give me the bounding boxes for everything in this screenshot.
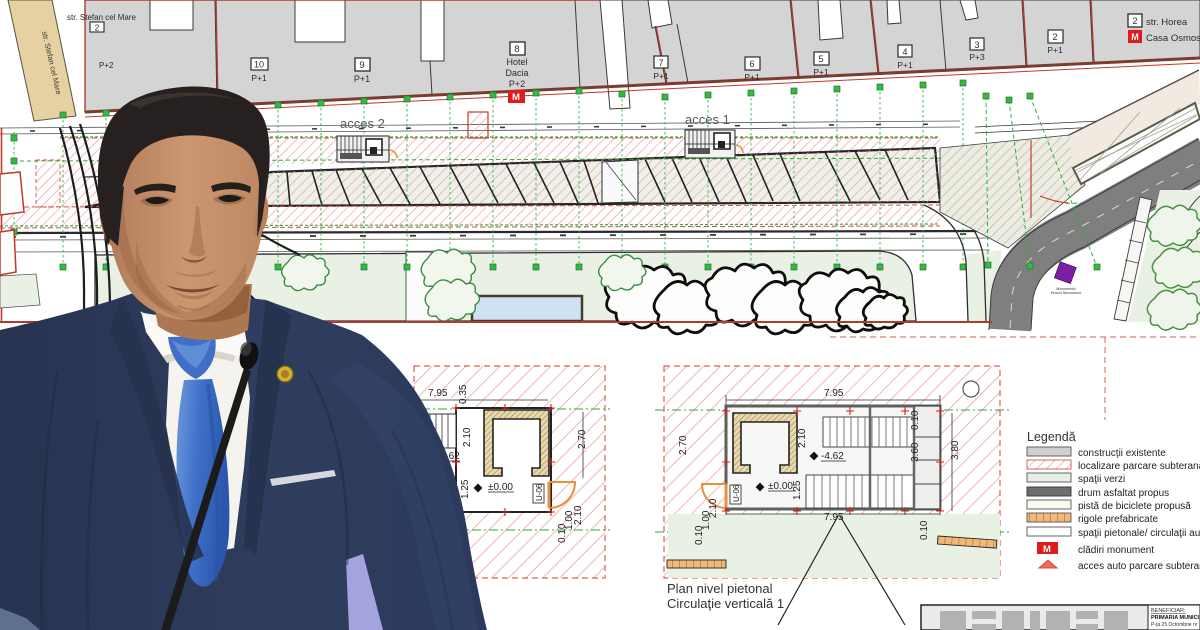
svg-text:pistă de biciclete propusă: pistă de biciclete propusă [1078,501,1191,512]
svg-text:acces auto parcare subteran: acces auto parcare subteran [1078,561,1200,572]
svg-text:3.60: 3.60 [910,442,921,462]
svg-text:8: 8 [514,44,519,55]
svg-text:PRIMARIA MUNICIPI: PRIMARIA MUNICIPI [1151,615,1200,621]
svg-text:2.10: 2.10 [462,427,473,447]
svg-text:P-ţa 25 Octombrie nr: P-ţa 25 Octombrie nr [1151,622,1198,628]
svg-text:4: 4 [902,47,907,57]
svg-text:2.10: 2.10 [708,498,719,518]
svg-text:M: M [1043,544,1051,555]
svg-text:localizare parcare subterană: localizare parcare subterană [1078,461,1200,472]
svg-text:1.25: 1.25 [460,479,471,499]
svg-text:Plan nivel pietonal: Plan nivel pietonal [667,581,773,596]
svg-text:Eroului Necunoscut: Eroului Necunoscut [1051,291,1081,295]
svg-text:7.95: 7.95 [824,388,844,399]
svg-text:P+1: P+1 [251,73,267,83]
svg-text:clădiri monument: clădiri monument [1078,545,1154,556]
svg-text:P+3: P+3 [969,52,985,62]
svg-text:P+1: P+1 [897,60,913,70]
svg-text:rigole prefabricate: rigole prefabricate [1078,514,1158,525]
svg-text:Circulaţie verticală 1: Circulaţie verticală 1 [667,596,784,611]
svg-text:Hotel: Hotel [506,57,527,67]
svg-text:2: 2 [95,23,100,33]
svg-text:2.70: 2.70 [678,435,689,455]
svg-text:construcţii existente: construcţii existente [1078,448,1166,459]
svg-text:2: 2 [1132,16,1137,26]
svg-text:3: 3 [974,40,979,50]
svg-text:spaţii pietonale/ circulaţii a: spaţii pietonale/ circulaţii aut [1078,528,1200,539]
svg-text:7: 7 [658,58,663,68]
svg-text:spaţii verzi: spaţii verzi [1078,474,1125,485]
svg-text:str. Horea: str. Horea [1146,17,1188,28]
svg-text:5: 5 [818,54,823,64]
svg-text:Casa Osmos: Casa Osmos [1146,33,1200,44]
svg-text:M: M [512,92,520,103]
svg-text:M: M [1131,32,1139,42]
svg-text:±0.00: ±0.00 [768,481,793,492]
svg-text:BENEFICIAR:: BENEFICIAR: [1151,608,1186,614]
svg-text:9: 9 [359,60,364,71]
svg-text:P+1: P+1 [1047,45,1063,55]
svg-text:acces 2: acces 2 [340,116,385,131]
svg-text:U-06: U-06 [535,483,544,501]
svg-text:-4.62: -4.62 [821,451,844,462]
svg-text:Legendă: Legendă [1027,430,1076,444]
svg-text:±0.00: ±0.00 [488,482,513,493]
svg-text:7.95: 7.95 [428,388,448,399]
svg-text:2.10: 2.10 [797,428,808,448]
svg-text:0.10: 0.10 [557,523,568,543]
svg-text:P+1: P+1 [813,67,829,77]
svg-text:P+2: P+2 [509,79,525,89]
svg-text:str. Stefan cel Mare: str. Stefan cel Mare [67,13,136,22]
svg-text:0.10: 0.10 [910,410,921,430]
svg-text:1.25: 1.25 [792,480,803,500]
svg-text:2.70: 2.70 [577,429,588,449]
svg-text:0.10: 0.10 [919,520,930,540]
svg-text:P+2: P+2 [99,61,114,70]
svg-text:2: 2 [1052,32,1057,42]
svg-text:6: 6 [749,59,754,69]
svg-text:P+1: P+1 [744,72,760,82]
svg-text:drum asfaltat propus: drum asfaltat propus [1078,488,1169,499]
svg-text:P+1: P+1 [354,74,370,84]
svg-text:acces 1: acces 1 [685,112,730,127]
svg-text:Dacia: Dacia [505,68,528,78]
svg-text:U-06: U-06 [732,484,741,502]
svg-text:10: 10 [254,60,264,70]
svg-text:P+1: P+1 [653,71,669,81]
svg-text:0.35: 0.35 [458,384,469,404]
